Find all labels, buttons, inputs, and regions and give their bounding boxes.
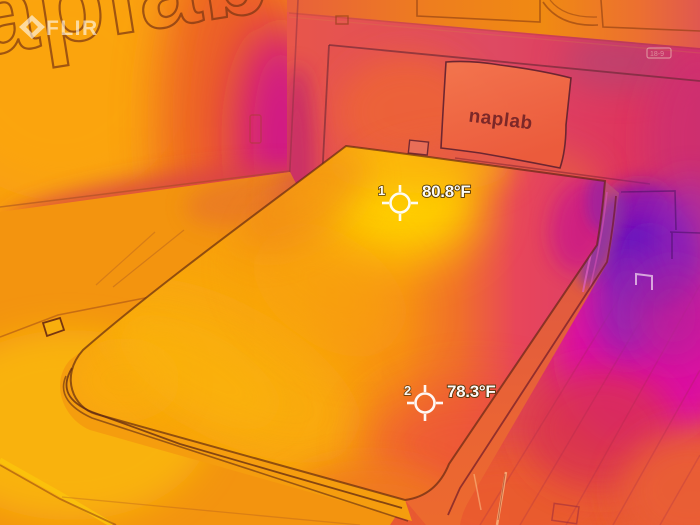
svg-text:2: 2 [404,383,411,398]
svg-text:80.8°F: 80.8°F [422,182,470,201]
svg-text:18-9: 18-9 [650,51,664,58]
svg-text:78.3°F: 78.3°F [447,382,495,401]
svg-text:1: 1 [378,183,385,198]
svg-text:FLIR: FLIR [46,17,99,40]
